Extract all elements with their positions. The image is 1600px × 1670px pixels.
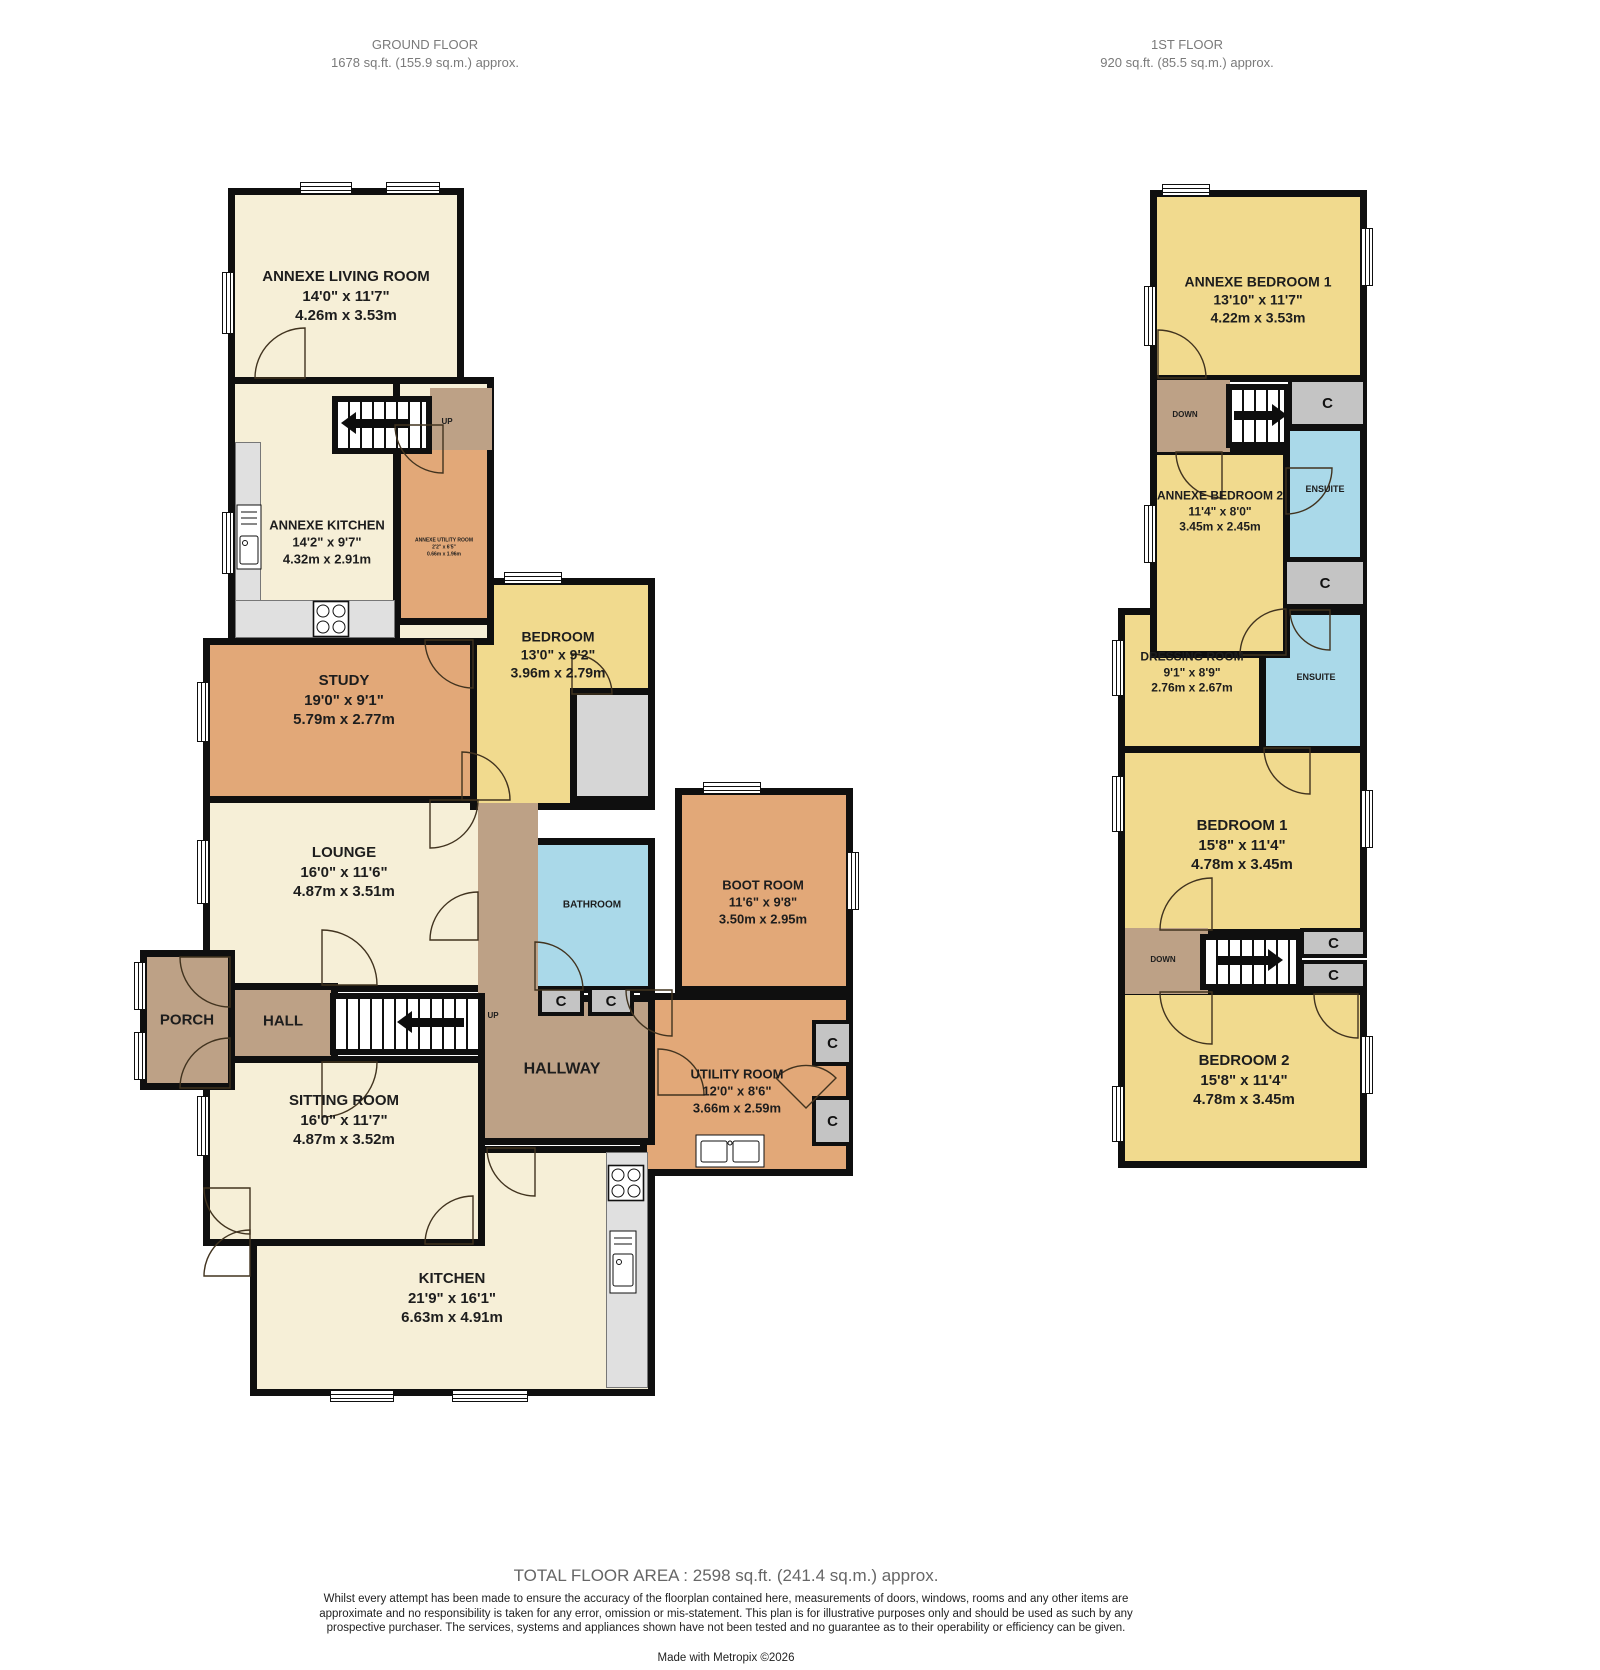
room-label-hallway: HALLWAY <box>524 1060 601 1081</box>
room-name: STUDY <box>293 671 395 691</box>
room-label-sitting-room: SITTING ROOM 16'0" x 11'7" 4.87m x 3.52m <box>289 1091 399 1150</box>
window <box>1162 184 1210 196</box>
sink-icon <box>609 1230 637 1294</box>
room-label-boot-room: BOOT ROOM 11'6" x 9'8" 3.50m x 2.95m <box>719 878 807 929</box>
room-size-imperial: 11'4" x 8'0" <box>1157 504 1283 520</box>
window <box>1144 286 1156 346</box>
cupboard-label: C <box>827 1113 838 1130</box>
room-size-imperial: 14'0" x 11'7" <box>262 286 430 306</box>
cupboard-label: C <box>1320 575 1331 592</box>
room-name: ANNEXE BEDROOM 1 <box>1184 273 1331 291</box>
stairs-down-arrow-icon <box>1234 411 1272 420</box>
room-name: UTILITY ROOM <box>691 1067 784 1084</box>
ground-floor-header: GROUND FLOOR 1678 sq.ft. (155.9 sq.m.) a… <box>225 36 625 71</box>
window <box>1361 790 1373 848</box>
window <box>300 182 352 194</box>
first-floor-header: 1ST FLOOR 920 sq.ft. (85.5 sq.m.) approx… <box>987 36 1387 71</box>
room-size-metric: 3.66m x 2.59m <box>691 1100 784 1117</box>
room-name: HALLWAY <box>524 1060 601 1081</box>
room-name: SITTING ROOM <box>289 1091 399 1111</box>
room-bathroom <box>530 838 655 993</box>
corridor-hallway <box>478 803 538 1003</box>
first-floor-area: 920 sq.ft. (85.5 sq.m.) approx. <box>987 54 1387 72</box>
cupboard: C <box>1283 558 1367 608</box>
up-text: UP <box>441 417 452 426</box>
ground-floor-title: GROUND FLOOR <box>225 36 625 54</box>
room-size-metric: 2.76m x 2.67m <box>1140 681 1243 697</box>
window <box>1112 640 1124 696</box>
window <box>197 840 209 904</box>
cupboard: C <box>812 1020 853 1066</box>
ground-floor-area: 1678 sq.ft. (155.9 sq.m.) approx. <box>225 54 625 72</box>
room-label-ensuite-2: ENSUITE <box>1296 672 1335 684</box>
room-size-imperial: 2'2" x 6'5" <box>415 545 473 552</box>
room-label-study: STUDY 19'0" x 9'1" 5.79m x 2.77m <box>293 671 395 730</box>
room-size-metric: 4.78m x 3.45m <box>1193 1090 1295 1110</box>
room-name: BOOT ROOM <box>719 878 807 895</box>
window <box>703 782 761 794</box>
room-label-dressing-room: DRESSING ROOM 9'1" x 8'9" 2.76m x 2.67m <box>1140 650 1243 697</box>
room-size-imperial: 13'0" x 9'2" <box>511 646 606 664</box>
room-sitting-room <box>203 1056 485 1246</box>
cupboard-label: C <box>1322 395 1333 412</box>
room-name: ENSUITE <box>1296 672 1335 684</box>
down-text: DOWN <box>1172 410 1197 419</box>
hob-icon <box>312 600 350 638</box>
room-size-imperial: 11'6" x 9'8" <box>719 895 807 912</box>
room-label-porch: PORCH <box>160 1010 214 1030</box>
room-annexe-bedroom-2 <box>1150 448 1290 658</box>
room-name: BATHROOM <box>563 899 621 912</box>
room-size-metric: 4.26m x 3.53m <box>262 306 430 326</box>
window <box>222 272 234 334</box>
window <box>504 572 562 584</box>
room-name: ANNEXE LIVING ROOM <box>262 267 430 287</box>
room-size-metric: 3.96m x 2.79m <box>511 664 606 682</box>
room-size-imperial: 14'2" x 9'7" <box>269 535 385 552</box>
cupboard: C <box>538 986 584 1016</box>
stairs-up-label: UP <box>441 417 452 427</box>
credit-text: Made with Metropix ©2026 <box>301 1652 1151 1664</box>
room-size-metric: 3.50m x 2.95m <box>719 911 807 928</box>
window <box>1144 505 1156 563</box>
room-name: ANNEXE KITCHEN <box>269 518 385 535</box>
window <box>197 682 209 742</box>
room-size-imperial: 21'9" x 16'1" <box>401 1288 503 1308</box>
room-name: BEDROOM 2 <box>1193 1051 1295 1071</box>
room-label-bedroom: BEDROOM 13'0" x 9'2" 3.96m x 2.79m <box>511 628 606 683</box>
room-size-imperial: 19'0" x 9'1" <box>293 690 395 710</box>
room-size-imperial: 15'8" x 11'4" <box>1193 1070 1295 1090</box>
window <box>386 182 440 194</box>
cupboard: C <box>1300 928 1367 958</box>
bedroom-closet <box>570 688 655 803</box>
room-size-metric: 6.63m x 4.91m <box>401 1308 503 1328</box>
stairs-up-label: UP <box>487 1011 498 1021</box>
cupboard: C <box>588 986 634 1016</box>
room-size-imperial: 13'10" x 11'7" <box>1184 291 1331 309</box>
room-name: KITCHEN <box>401 1269 503 1289</box>
window <box>134 962 146 1010</box>
total-floor-area: TOTAL FLOOR AREA : 2598 sq.ft. (241.4 sq… <box>301 1566 1151 1586</box>
cupboard-label: C <box>827 1035 838 1052</box>
cupboard: C <box>812 1096 853 1146</box>
cupboard-label: C <box>1328 967 1339 984</box>
stairs-down-arrow-icon <box>1216 956 1268 965</box>
room-size-metric: 4.78m x 3.45m <box>1191 855 1293 875</box>
room-size-metric: 0.66m x 1.96m <box>415 552 473 559</box>
disclaimer-text: Whilst every attempt has been made to en… <box>301 1592 1151 1636</box>
room-label-bedroom-2: BEDROOM 2 15'8" x 11'4" 4.78m x 3.45m <box>1193 1051 1295 1110</box>
room-name: ANNEXE UTILITY ROOM <box>415 538 473 545</box>
room-label-annexe-living-room: ANNEXE LIVING ROOM 14'0" x 11'7" 4.26m x… <box>262 267 430 326</box>
down-text: DOWN <box>1150 955 1175 964</box>
room-label-ensuite-1: ENSUITE <box>1305 484 1344 496</box>
window <box>1112 1086 1124 1142</box>
annexe-stairs-landing <box>430 388 492 450</box>
room-size-imperial: 16'0" x 11'6" <box>293 862 395 882</box>
room-label-annexe-utility: ANNEXE UTILITY ROOM 2'2" x 6'5" 0.66m x … <box>415 538 473 559</box>
cupboard-label: C <box>556 993 567 1010</box>
window <box>1361 228 1373 286</box>
sink-icon <box>236 504 262 570</box>
window <box>134 1032 146 1080</box>
room-size-metric: 5.79m x 2.77m <box>293 710 395 730</box>
room-label-annexe-bedroom-2: ANNEXE BEDROOM 2 11'4" x 8'0" 3.45m x 2.… <box>1157 489 1283 536</box>
room-size-imperial: 9'1" x 8'9" <box>1140 665 1243 681</box>
room-name: ANNEXE BEDROOM 2 <box>1157 489 1283 505</box>
room-label-hall: HALL <box>263 1011 303 1031</box>
window <box>1361 1036 1373 1094</box>
room-label-bedroom-1: BEDROOM 1 15'8" x 11'4" 4.78m x 3.45m <box>1191 816 1293 875</box>
sink-icon <box>695 1134 765 1168</box>
stairs-down-label: DOWN <box>1172 410 1197 420</box>
room-size-imperial: 16'0" x 11'7" <box>289 1110 399 1130</box>
up-text: UP <box>487 1011 498 1020</box>
room-size-imperial: 12'0" x 8'6" <box>691 1084 784 1101</box>
window <box>847 852 859 910</box>
stairs-up-arrow-icon <box>412 1018 464 1027</box>
window <box>452 1390 528 1402</box>
room-label-bathroom: BATHROOM <box>563 899 621 912</box>
cupboard-label: C <box>606 993 617 1010</box>
stairs-down-label: DOWN <box>1150 955 1175 965</box>
cupboard: C <box>1300 960 1367 990</box>
room-name: ENSUITE <box>1305 484 1344 496</box>
room-size-imperial: 15'8" x 11'4" <box>1191 835 1293 855</box>
cupboard: C <box>1288 378 1367 428</box>
room-name: DRESSING ROOM <box>1140 650 1243 666</box>
room-size-metric: 4.87m x 3.52m <box>289 1130 399 1150</box>
stairs-up-arrow-icon <box>356 419 408 428</box>
room-label-lounge: LOUNGE 16'0" x 11'6" 4.87m x 3.51m <box>293 843 395 902</box>
room-name: HALL <box>263 1011 303 1031</box>
window <box>330 1390 394 1402</box>
room-name: LOUNGE <box>293 843 395 863</box>
room-label-utility-room: UTILITY ROOM 12'0" x 8'6" 3.66m x 2.59m <box>691 1067 784 1118</box>
floorplan-page: { "headers": { "ground": { "title": "GRO… <box>0 0 1600 1670</box>
room-size-metric: 4.87m x 3.51m <box>293 882 395 902</box>
cupboard-label: C <box>1328 935 1339 952</box>
room-name: PORCH <box>160 1010 214 1030</box>
room-label-annexe-kitchen: ANNEXE KITCHEN 14'2" x 9'7" 4.32m x 2.91… <box>269 518 385 569</box>
hob-icon <box>607 1164 645 1202</box>
room-label-annexe-bedroom-1: ANNEXE BEDROOM 1 13'10" x 11'7" 4.22m x … <box>1184 273 1331 328</box>
window <box>222 512 234 574</box>
room-label-kitchen: KITCHEN 21'9" x 16'1" 6.63m x 4.91m <box>401 1269 503 1328</box>
room-size-metric: 3.45m x 2.45m <box>1157 520 1283 536</box>
room-name: BEDROOM <box>511 628 606 646</box>
window <box>1112 776 1124 832</box>
window <box>197 1096 209 1156</box>
room-size-metric: 4.32m x 2.91m <box>269 551 385 568</box>
room-name: BEDROOM 1 <box>1191 816 1293 836</box>
room-size-metric: 4.22m x 3.53m <box>1184 309 1331 327</box>
first-floor-title: 1ST FLOOR <box>987 36 1387 54</box>
